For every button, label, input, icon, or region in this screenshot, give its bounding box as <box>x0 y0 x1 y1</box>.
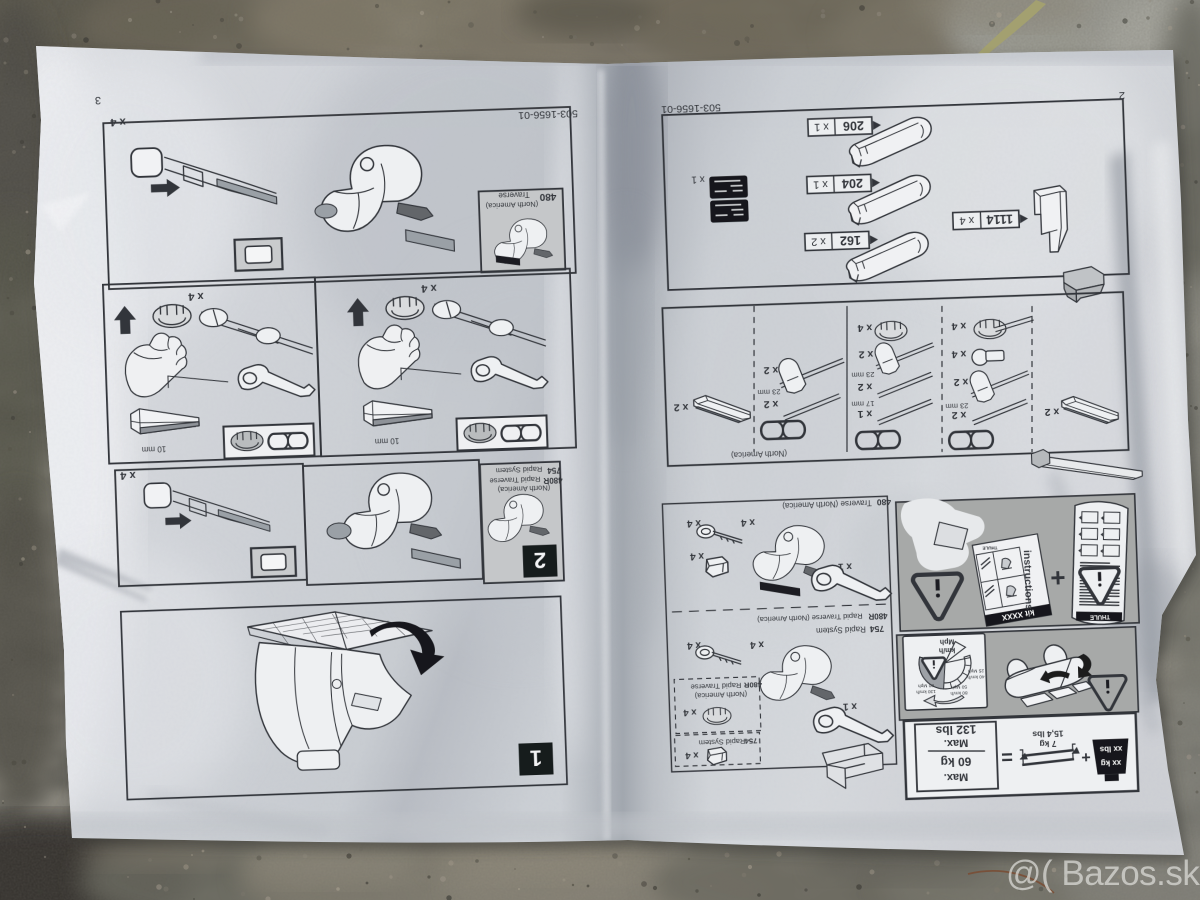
svg-text:1: 1 <box>529 745 542 770</box>
svg-text:x 4: x 4 <box>684 749 698 760</box>
svg-text:60 kg: 60 kg <box>940 754 971 769</box>
svg-text:80 km/h: 80 km/h <box>950 689 968 696</box>
svg-text:x 2: x 2 <box>763 364 778 377</box>
svg-text:x 4: x 4 <box>420 282 437 295</box>
svg-text:Max.: Max. <box>944 771 969 784</box>
svg-text:x 2: x 2 <box>858 348 873 361</box>
svg-text:Max.: Max. <box>944 737 969 750</box>
svg-text:15,4 lbs: 15,4 lbs <box>1032 728 1064 739</box>
svg-text:x 4: x 4 <box>682 706 696 717</box>
svg-text:50 Mph: 50 Mph <box>951 683 968 690</box>
svg-text:754: 754 <box>547 465 561 474</box>
svg-text:10 mm: 10 mm <box>141 444 166 454</box>
svg-text:instructions: instructions <box>1021 550 1035 611</box>
svg-text:xx kg: xx kg <box>1101 758 1122 768</box>
svg-text:2: 2 <box>533 547 546 572</box>
svg-text:+: + <box>1081 748 1091 765</box>
svg-text:480: 480 <box>539 190 556 202</box>
svg-text:132 lbs: 132 lbs <box>935 722 976 737</box>
svg-text:3: 3 <box>95 94 102 106</box>
svg-text:xx lbs: xx lbs <box>1099 744 1123 754</box>
svg-text:(North America): (North America) <box>485 200 538 211</box>
svg-text:x 2: x 2 <box>673 401 688 414</box>
svg-text:23 mm: 23 mm <box>851 370 874 380</box>
svg-text:x 4: x 4 <box>951 320 966 333</box>
svg-text:x 1: x 1 <box>842 700 857 711</box>
svg-text:x 1: x 1 <box>813 178 828 191</box>
svg-text:x 4: x 4 <box>187 290 204 303</box>
svg-text:480R: 480R <box>868 611 888 621</box>
svg-text:x 1: x 1 <box>857 408 872 421</box>
svg-text:x 4: x 4 <box>951 348 966 361</box>
svg-text:x 2: x 2 <box>857 381 872 394</box>
svg-text:754: 754 <box>869 624 884 634</box>
svg-text:10 mm: 10 mm <box>374 436 399 446</box>
svg-text:x 2: x 2 <box>1044 406 1059 419</box>
svg-text:Mph: Mph <box>940 637 955 644</box>
svg-text:Rapid System: Rapid System <box>816 625 866 636</box>
svg-text:x 4: x 4 <box>857 322 872 335</box>
svg-text:x 1: x 1 <box>814 120 829 133</box>
svg-text:80 Mph: 80 Mph <box>918 682 935 689</box>
svg-text:+: + <box>1050 563 1066 594</box>
svg-text:THULE: THULE <box>1090 613 1110 620</box>
svg-text:=: = <box>1001 745 1013 767</box>
svg-text:x 4: x 4 <box>749 638 764 649</box>
svg-text:x 4: x 4 <box>740 516 755 527</box>
svg-text:23 mm: 23 mm <box>757 387 780 397</box>
svg-text:(North America): (North America) <box>694 690 747 701</box>
svg-text:1114: 1114 <box>986 212 1013 227</box>
svg-text:x 4: x 4 <box>109 115 126 128</box>
svg-text:Rapid System: Rapid System <box>699 737 746 748</box>
svg-text:480: 480 <box>876 497 891 507</box>
svg-text:206: 206 <box>843 118 864 133</box>
svg-text:480R: 480R <box>543 475 563 485</box>
svg-text:40 km/h: 40 km/h <box>967 673 985 680</box>
svg-text:480R: 480R <box>743 680 762 690</box>
svg-text:x 2: x 2 <box>763 398 778 411</box>
svg-text:130 km/h: 130 km/h <box>916 688 936 695</box>
svg-text:x 4: x 4 <box>959 214 974 227</box>
svg-text:17 mm: 17 mm <box>851 399 874 409</box>
svg-text:162: 162 <box>840 233 861 248</box>
svg-text:7 kg: 7 kg <box>1039 739 1056 750</box>
svg-text:x 2: x 2 <box>951 409 966 422</box>
svg-text:x 4: x 4 <box>119 469 136 482</box>
svg-text:@( Bazos.sk: @( Bazos.sk <box>1006 854 1200 893</box>
svg-text:km/h: km/h <box>939 646 956 654</box>
svg-text:Traverse: Traverse <box>498 190 530 200</box>
svg-text:(North America): (North America) <box>497 484 550 495</box>
svg-text:x 2: x 2 <box>953 376 968 389</box>
svg-text:204: 204 <box>842 176 863 191</box>
svg-text:x 4: x 4 <box>689 550 704 561</box>
svg-text:Rapid System: Rapid System <box>496 465 543 476</box>
svg-text:x 1: x 1 <box>691 173 705 184</box>
svg-text:Rapid Traverse: Rapid Traverse <box>489 475 540 486</box>
svg-text:Rapid Traverse: Rapid Traverse <box>690 681 741 692</box>
svg-text:25 Mph: 25 Mph <box>968 667 985 674</box>
svg-text:THULE: THULE <box>982 545 997 551</box>
svg-text:x 2: x 2 <box>811 235 826 248</box>
